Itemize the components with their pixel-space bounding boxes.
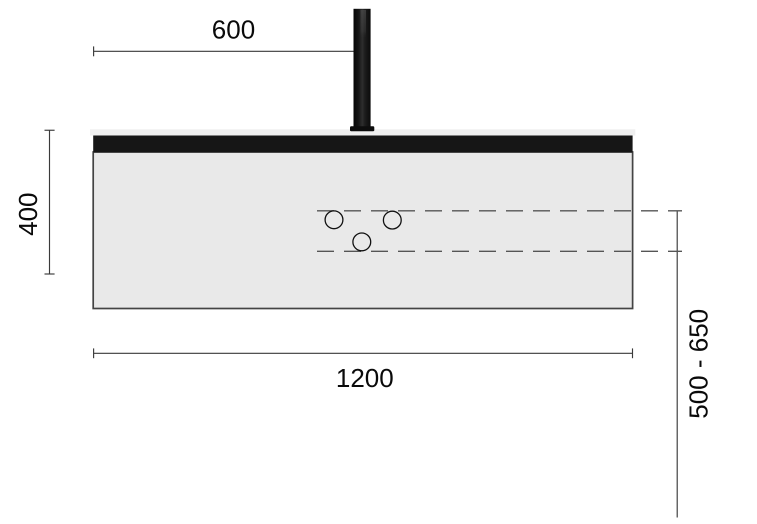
svg-text:500 - 650: 500 - 650: [683, 309, 713, 419]
svg-text:600: 600: [212, 15, 255, 45]
svg-text:1200: 1200: [336, 363, 394, 393]
svg-text:400: 400: [13, 193, 43, 236]
